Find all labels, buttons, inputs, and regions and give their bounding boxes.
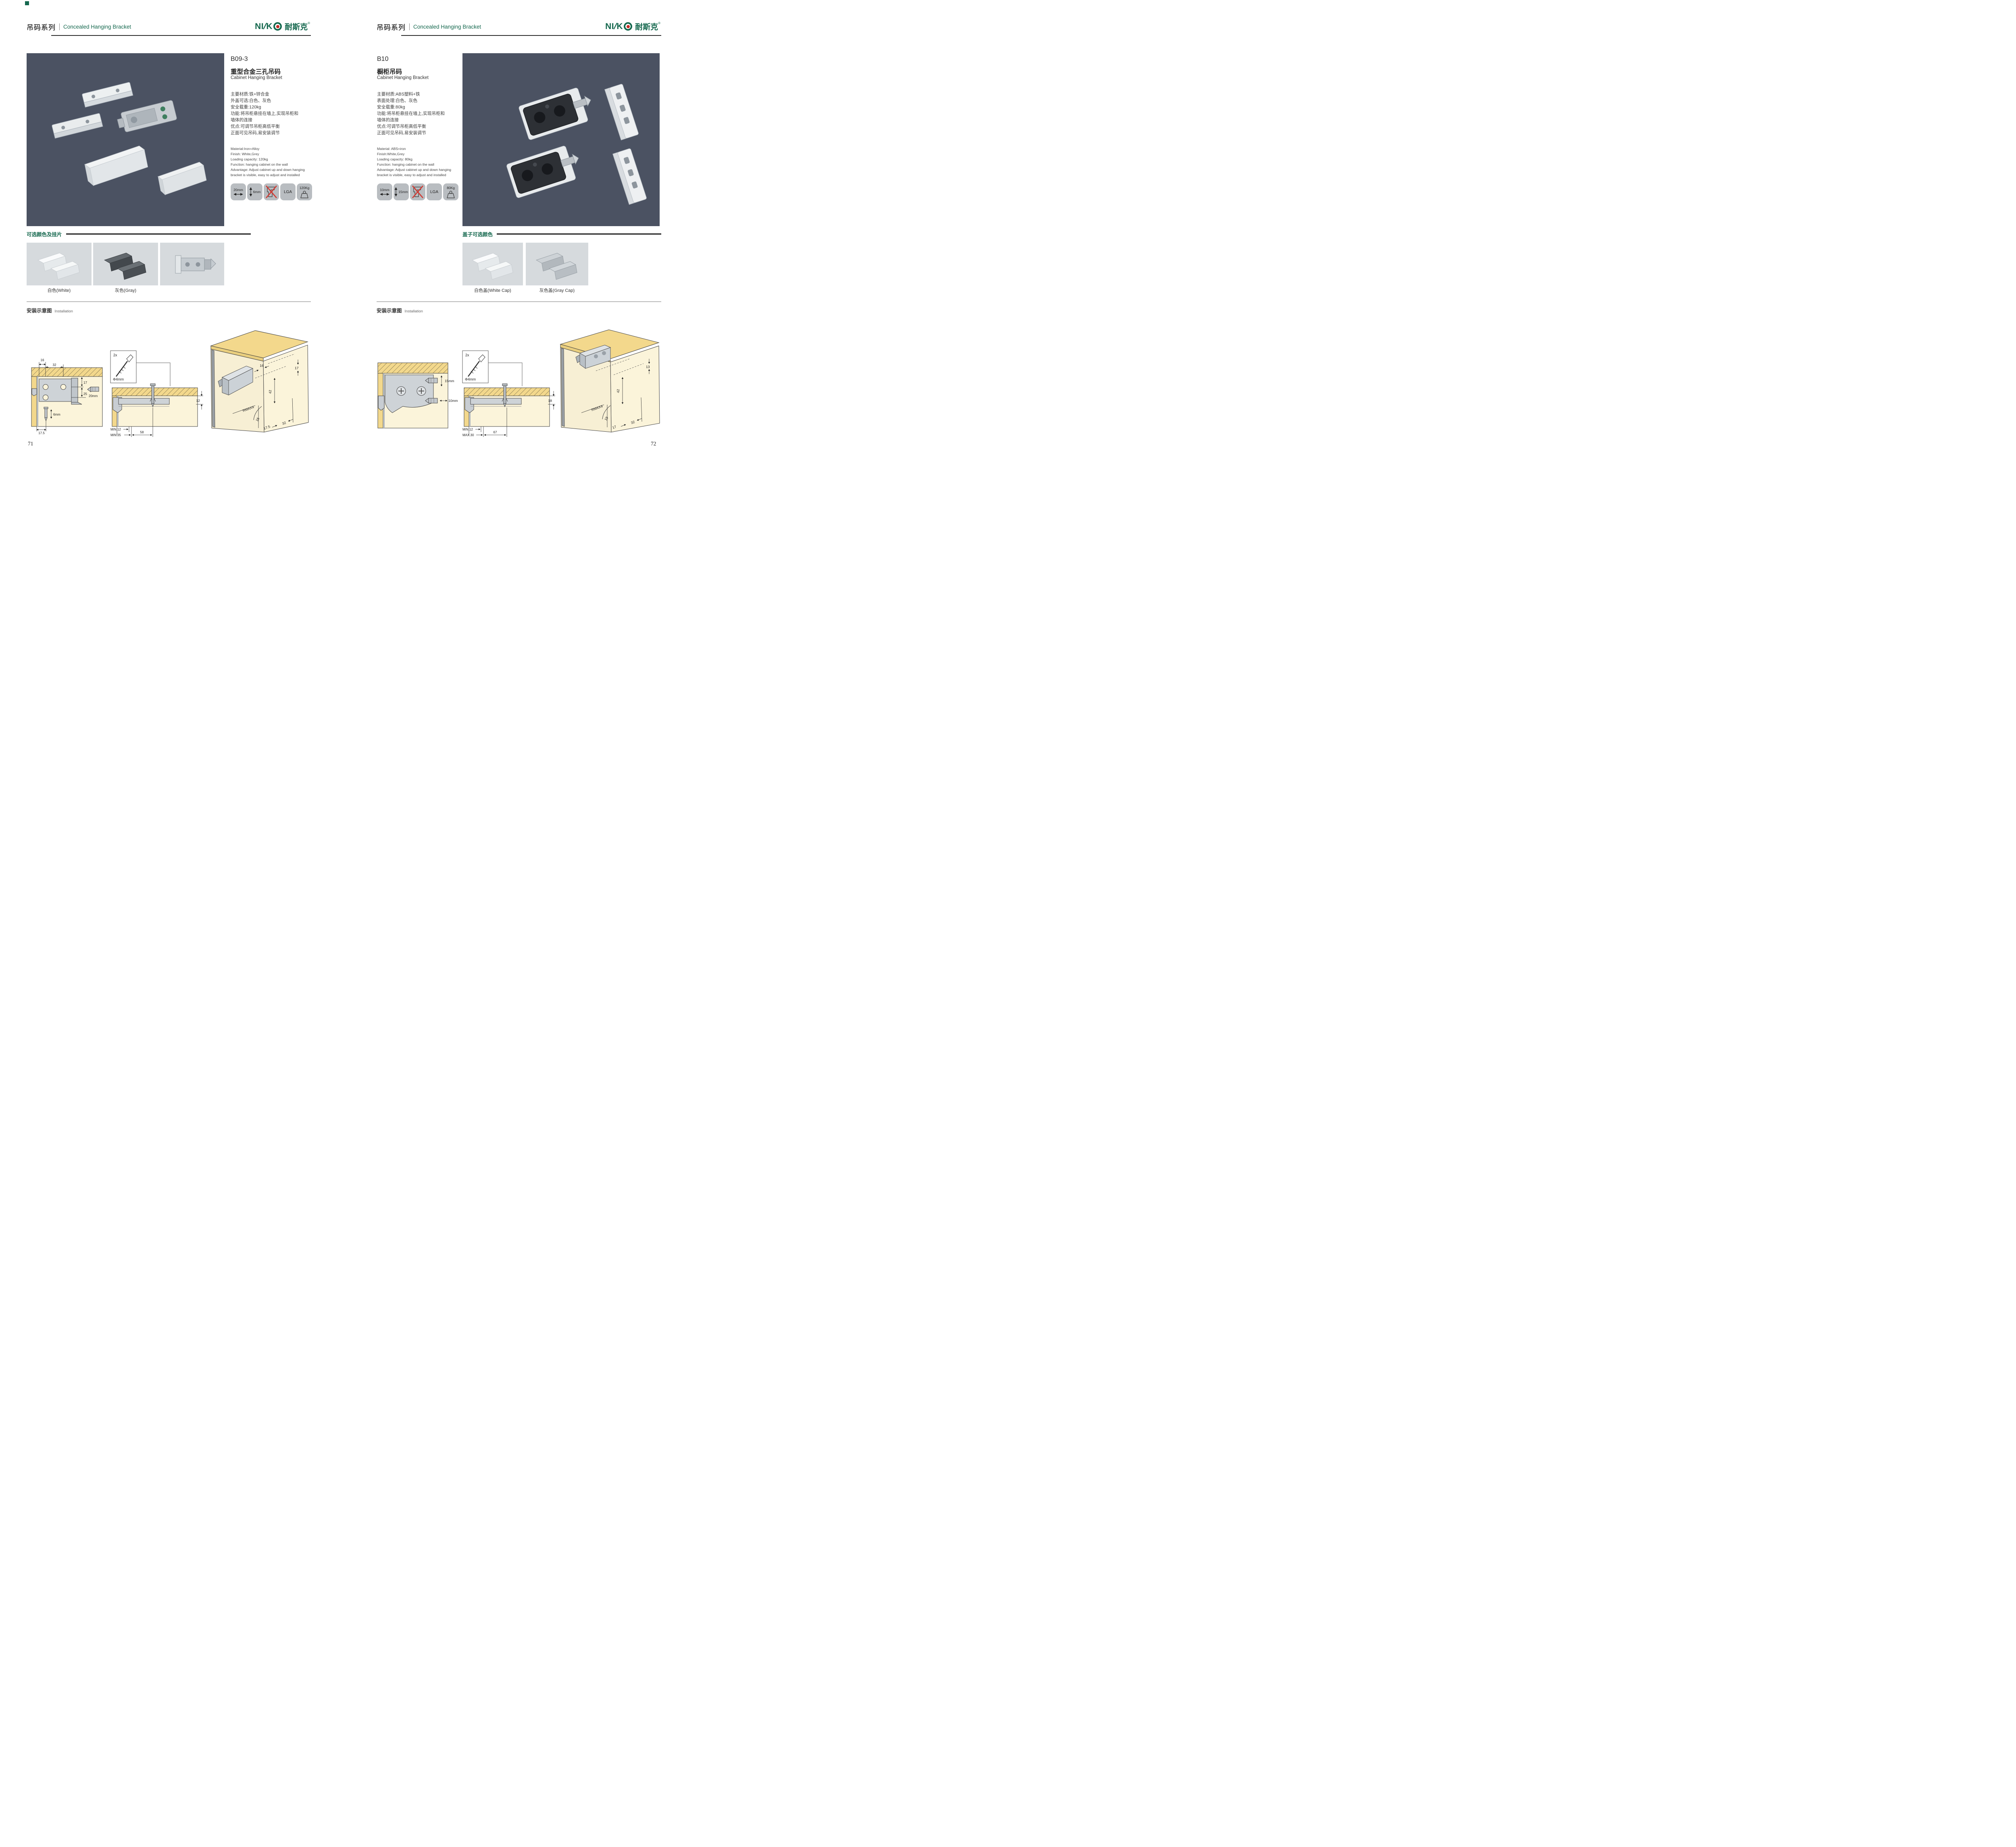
svg-text:58: 58	[140, 431, 144, 434]
svg-text:2x: 2x	[113, 353, 117, 357]
section-rule	[497, 233, 661, 235]
section-rule	[66, 233, 251, 235]
product-name-en: Cabinet Hanging Bracket	[231, 75, 282, 80]
svg-text:10mm: 10mm	[448, 399, 458, 403]
svg-text:MAX.30: MAX.30	[462, 433, 474, 437]
spec-line: Loading capacity: 120kg	[231, 157, 305, 162]
swatch-bracket	[160, 243, 224, 285]
spec-line: 优点:可调节吊柜高低平衡	[231, 123, 298, 130]
swatch-white	[27, 243, 92, 285]
page-right: 吊码系列 Concealed Hanging Bracket NI/K 耐斯克 …	[377, 0, 661, 462]
svg-text:42: 42	[268, 390, 272, 394]
svg-text:17: 17	[295, 366, 299, 370]
install-diagram-section: 16 32 17 25 20mm 6mm 17.5	[30, 357, 108, 435]
installation-header: 安装示意图 Installation	[27, 306, 73, 314]
page-header: 吊码系列 Concealed Hanging Bracket	[27, 22, 131, 32]
h-arrow-icon	[232, 193, 244, 196]
svg-text:16: 16	[41, 358, 44, 362]
install-diagram-section: 15mm 10mm	[377, 357, 460, 435]
series-title-en: Concealed Hanging Bracket	[63, 24, 131, 30]
weight-icon	[445, 191, 456, 198]
badge-depth: 6mm	[247, 183, 262, 200]
install-diagram-cutaway: 13 42 RMAX4 19 17 32	[557, 327, 661, 434]
installation-title-en: Installation	[405, 309, 423, 314]
colors-section-title: 盖子可选颜色	[462, 230, 493, 238]
page-number: 71	[28, 441, 33, 447]
svg-text:42: 42	[616, 389, 620, 393]
badge-load: 80Kg	[443, 183, 458, 200]
svg-text:13: 13	[646, 365, 650, 369]
spec-line: 正面可见吊码,易安装调节	[231, 130, 298, 136]
install-diagram-cutaway: 16 17 42 RMAX4 16 17.5 32	[208, 327, 311, 434]
installation-title-en: Installation	[55, 309, 73, 314]
spec-line: 功能:将吊柜悬挂在墙上,实现吊柜和	[377, 110, 445, 117]
h-arrow-icon	[379, 193, 391, 196]
swatch-gray-cap	[526, 243, 588, 285]
spec-line: Finish: White,Grey	[231, 152, 305, 157]
svg-text:16: 16	[260, 364, 264, 368]
spec-line: bracket is visible, easy to adjust and i…	[377, 173, 451, 178]
spec-line: Material:Iron+Alloy	[231, 146, 305, 152]
divider	[27, 302, 311, 302]
badge-no-drill	[410, 183, 425, 200]
install-diagram-screws: 2x Φ4mm 12 MIN.12 MIN.35	[110, 350, 204, 438]
spec-line: Function: hanging cabinet on the wall	[377, 162, 451, 167]
colors-section-header: 盖子可选颜色	[462, 230, 661, 238]
svg-text:67: 67	[494, 431, 497, 434]
swatch-white-cap	[462, 243, 523, 285]
product-info: B09-3 重型合金三孔吊码 Cabinet Hanging Bracket 主…	[231, 53, 316, 190]
install-diagram-screws: 2x Φ4mm 18 MIN.12 MAX.30	[462, 350, 558, 438]
swatch-label-gray-cap: 灰色盖(Gray Cap)	[526, 287, 588, 293]
product-name-en: Cabinet Hanging Bracket	[377, 75, 429, 80]
spec-line: 优点:可调节吊柜高低平衡	[377, 123, 445, 130]
spec-line: 功能:将吊柜悬挂在墙上,实现吊柜和	[231, 110, 298, 117]
installation-header: 安装示意图 Installation	[377, 306, 423, 314]
series-title-cn: 吊码系列	[377, 22, 406, 32]
header-rule	[51, 35, 311, 36]
badge-load-label: 120Kg	[300, 186, 310, 190]
badge-cert: LGA	[280, 183, 296, 200]
svg-text:12: 12	[196, 399, 200, 403]
spec-line: Material: ABS+iron	[377, 146, 451, 152]
badge-load: 120Kg	[297, 183, 312, 200]
badge-width: 10mm	[377, 183, 392, 200]
badge-cert: LGA	[427, 183, 442, 200]
spec-line: 安全载重:80kg	[377, 104, 445, 110]
logo-o-ring-icon	[624, 22, 632, 31]
badge-no-drill	[264, 183, 279, 200]
header-rule	[401, 35, 661, 36]
header-separator	[409, 23, 410, 30]
feature-badges: 10mm 15mm LGA	[377, 183, 458, 200]
spec-line: 墙体的连接	[231, 117, 298, 123]
spec-line: 正面可见吊码,易安装调节	[377, 130, 445, 136]
brand-logo: NI/K 耐斯克 ®	[605, 21, 660, 32]
v-arrow-icon	[249, 186, 252, 198]
logo-cn: 耐斯克	[285, 21, 308, 32]
colors-section-header: 可选颜色及挂片	[27, 230, 251, 238]
swatch-gray	[93, 243, 158, 285]
specs-cn: 主要材质:铁+锌合金 外盖可选:白色、灰色 安全载重:120kg 功能:将吊柜悬…	[231, 91, 298, 136]
svg-text:6mm: 6mm	[53, 413, 60, 416]
specs-en: Material: ABS+iron Finish:White,Grey Loa…	[377, 146, 451, 178]
brand-logo: NI/K 耐斯克 ®	[255, 21, 310, 32]
spec-line: bracket is visible, easy to adjust and i…	[231, 173, 305, 178]
page-number: 72	[651, 441, 656, 447]
product-model: B09-3	[231, 56, 248, 63]
logo-cn: 耐斯克	[635, 21, 658, 32]
badge-depth-label: 6mm	[253, 190, 261, 194]
product-name-cn: 橱柜吊码	[377, 67, 402, 76]
badge-cert-label: LGA	[284, 190, 292, 194]
badge-depth-label: 15mm	[398, 190, 408, 194]
spec-line: Finish:White,Grey	[377, 152, 451, 157]
swatch-label-white: 白色(White)	[27, 287, 92, 293]
badge-load-label: 80Kg	[447, 186, 455, 190]
product-model: B10	[377, 56, 388, 63]
v-arrow-icon	[394, 186, 398, 198]
badge-cert-label: LGA	[430, 190, 438, 194]
product-photo-b10	[462, 53, 660, 226]
installation-title-cn: 安装示意图	[377, 306, 402, 314]
spec-line: Advantage: Adjust cabinet up and down ha…	[377, 167, 451, 173]
svg-text:17.5: 17.5	[38, 431, 45, 435]
product-info: B10 橱柜吊码 Cabinet Hanging Bracket 主要材质:AB…	[377, 53, 462, 190]
svg-text:18: 18	[548, 399, 552, 403]
no-drill-icon	[411, 185, 424, 199]
spec-line: Function: hanging cabinet on the wall	[231, 162, 305, 167]
series-title-cn: 吊码系列	[27, 22, 56, 32]
badge-width-label: 10mm	[380, 188, 389, 192]
spec-line: Advantage: Adjust cabinet up and down ha…	[231, 167, 305, 173]
spec-line: 主要材质:ABS塑料+铁	[377, 91, 445, 98]
catalog-spread: 吊码系列 Concealed Hanging Bracket NI/K 耐斯克 …	[0, 0, 676, 462]
svg-text:Φ4mm: Φ4mm	[113, 377, 124, 381]
swatch-label-gray: 灰色(Gray)	[93, 287, 158, 293]
installation-title-cn: 安装示意图	[27, 306, 52, 314]
weight-icon	[299, 191, 310, 198]
page-left: 吊码系列 Concealed Hanging Bracket NI/K 耐斯克 …	[27, 0, 311, 462]
svg-text:MIN.12: MIN.12	[462, 428, 473, 431]
badge-width-label: 20mm	[233, 188, 243, 192]
spec-line: 墙体的连接	[377, 117, 445, 123]
svg-text:32: 32	[53, 363, 56, 367]
feature-badges: 20mm 6mm LGA	[231, 183, 312, 200]
spec-line: 表面处理:白色、灰色	[377, 98, 445, 104]
specs-cn: 主要材质:ABS塑料+铁 表面处理:白色、灰色 安全载重:80kg 功能:将吊柜…	[377, 91, 445, 136]
svg-text:MIN.12: MIN.12	[110, 428, 121, 431]
logo-registered-mark: ®	[658, 21, 660, 25]
spec-line: 外盖可选:白色、灰色	[231, 98, 298, 104]
svg-text:25: 25	[83, 392, 87, 396]
svg-text:2x: 2x	[465, 353, 469, 357]
spec-line: 主要材质:铁+锌合金	[231, 91, 298, 98]
badge-width: 20mm	[231, 183, 246, 200]
specs-en: Material:Iron+Alloy Finish: White,Grey L…	[231, 146, 305, 178]
product-name-cn: 重型合金三孔吊码	[231, 67, 281, 76]
colors-section-title: 可选颜色及挂片	[27, 230, 62, 238]
svg-text:20mm: 20mm	[89, 394, 98, 398]
logo-registered-mark: ®	[308, 21, 310, 25]
svg-text:Φ4mm: Φ4mm	[465, 377, 476, 381]
svg-text:15mm: 15mm	[445, 379, 454, 383]
logo-o-ring-icon	[273, 22, 282, 31]
svg-text:17: 17	[83, 381, 87, 385]
divider	[377, 302, 661, 302]
page-header: 吊码系列 Concealed Hanging Bracket	[377, 22, 481, 32]
product-photo-b09-3	[27, 53, 224, 226]
svg-text:MIN.35: MIN.35	[110, 433, 121, 437]
badge-depth: 15mm	[394, 183, 409, 200]
no-drill-icon	[265, 185, 278, 199]
spec-line: 安全载重:120kg	[231, 104, 298, 110]
spec-line: Loading capacity: 80kg	[377, 157, 451, 162]
swatch-label-white-cap: 白色盖(White Cap)	[462, 287, 523, 293]
header-separator	[59, 23, 60, 30]
series-title-en: Concealed Hanging Bracket	[413, 24, 481, 30]
